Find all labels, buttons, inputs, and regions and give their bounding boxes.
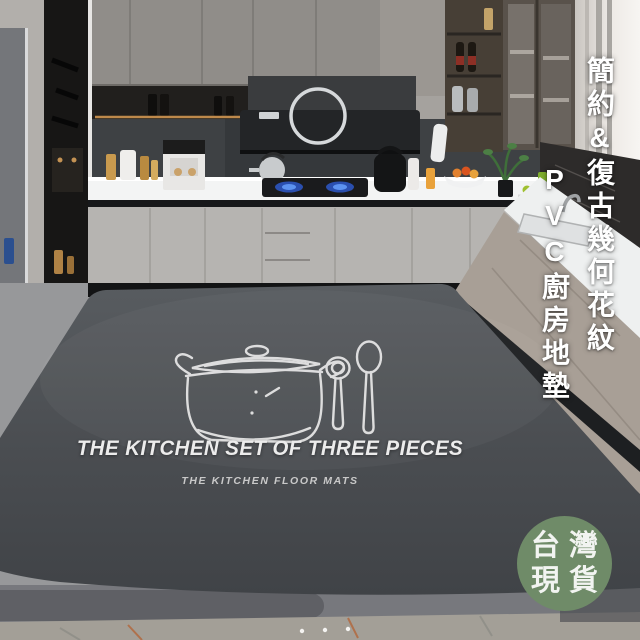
mat-title-text: THE KITCHEN SET OF THREE PIECES	[76, 437, 464, 461]
vertical-subline-text: PVC廚房地墊	[537, 164, 571, 404]
gold-bottle-accent	[67, 256, 74, 274]
orange-fruit	[462, 167, 471, 176]
orange-fruit	[470, 170, 479, 179]
gold-bottle	[106, 154, 116, 180]
gold-bottle-accent	[54, 250, 63, 274]
gas-cooktop	[262, 178, 368, 197]
orange-fruit	[453, 169, 462, 178]
coffee-cup	[174, 168, 182, 176]
wine-label	[456, 56, 464, 65]
fridge-display	[4, 238, 14, 264]
steel-canister	[467, 88, 478, 112]
shelf-bottle	[214, 96, 222, 116]
oven-knob	[58, 158, 63, 163]
glass-cabinet	[503, 0, 576, 150]
product-image: THE KITCHEN SET OF THREE PIECES THE KITC…	[0, 0, 640, 640]
steel-canister	[452, 86, 463, 112]
base-cabinets	[88, 207, 520, 297]
white-canister	[120, 150, 136, 180]
black-kettle	[374, 148, 406, 192]
counter-edge	[88, 200, 540, 208]
plant-pot	[498, 180, 513, 197]
mat-front-shadow	[0, 590, 324, 621]
sketch-dot	[254, 390, 257, 393]
stock-badge-line2: 現貨	[531, 564, 607, 599]
stock-badge-line1: 台灣	[531, 529, 607, 564]
gold-bottle	[140, 156, 149, 180]
stock-badge: 台灣 現貨	[517, 516, 612, 611]
shelf-jar	[484, 8, 493, 30]
shelf-bottle	[148, 94, 157, 116]
hood-label	[259, 112, 279, 119]
mat-subtitle-text: THE KITCHEN FLOOR MATS	[70, 475, 470, 487]
floor-dot	[323, 628, 327, 632]
oven-knob	[72, 158, 77, 163]
juice-glass	[426, 168, 435, 189]
sketch-dot	[250, 411, 253, 414]
built-in-oven	[52, 148, 83, 192]
range-hood	[240, 76, 420, 154]
gold-bottle	[151, 160, 158, 180]
coffee-cup	[188, 168, 196, 176]
shelf-bottle	[226, 96, 234, 116]
white-bottle	[408, 158, 419, 190]
coffee-machine	[163, 140, 205, 190]
wine-shelf-unit	[445, 0, 503, 152]
vertical-headline-text: 簡約&復古幾何花紋	[582, 56, 616, 356]
glass-reflection	[508, 4, 534, 144]
glass-reflection	[541, 4, 571, 144]
shelf-bottle	[160, 94, 169, 116]
open-shelf	[92, 86, 256, 119]
floor-dot	[346, 627, 350, 631]
wine-label	[468, 56, 476, 65]
floor-dot	[300, 629, 304, 633]
